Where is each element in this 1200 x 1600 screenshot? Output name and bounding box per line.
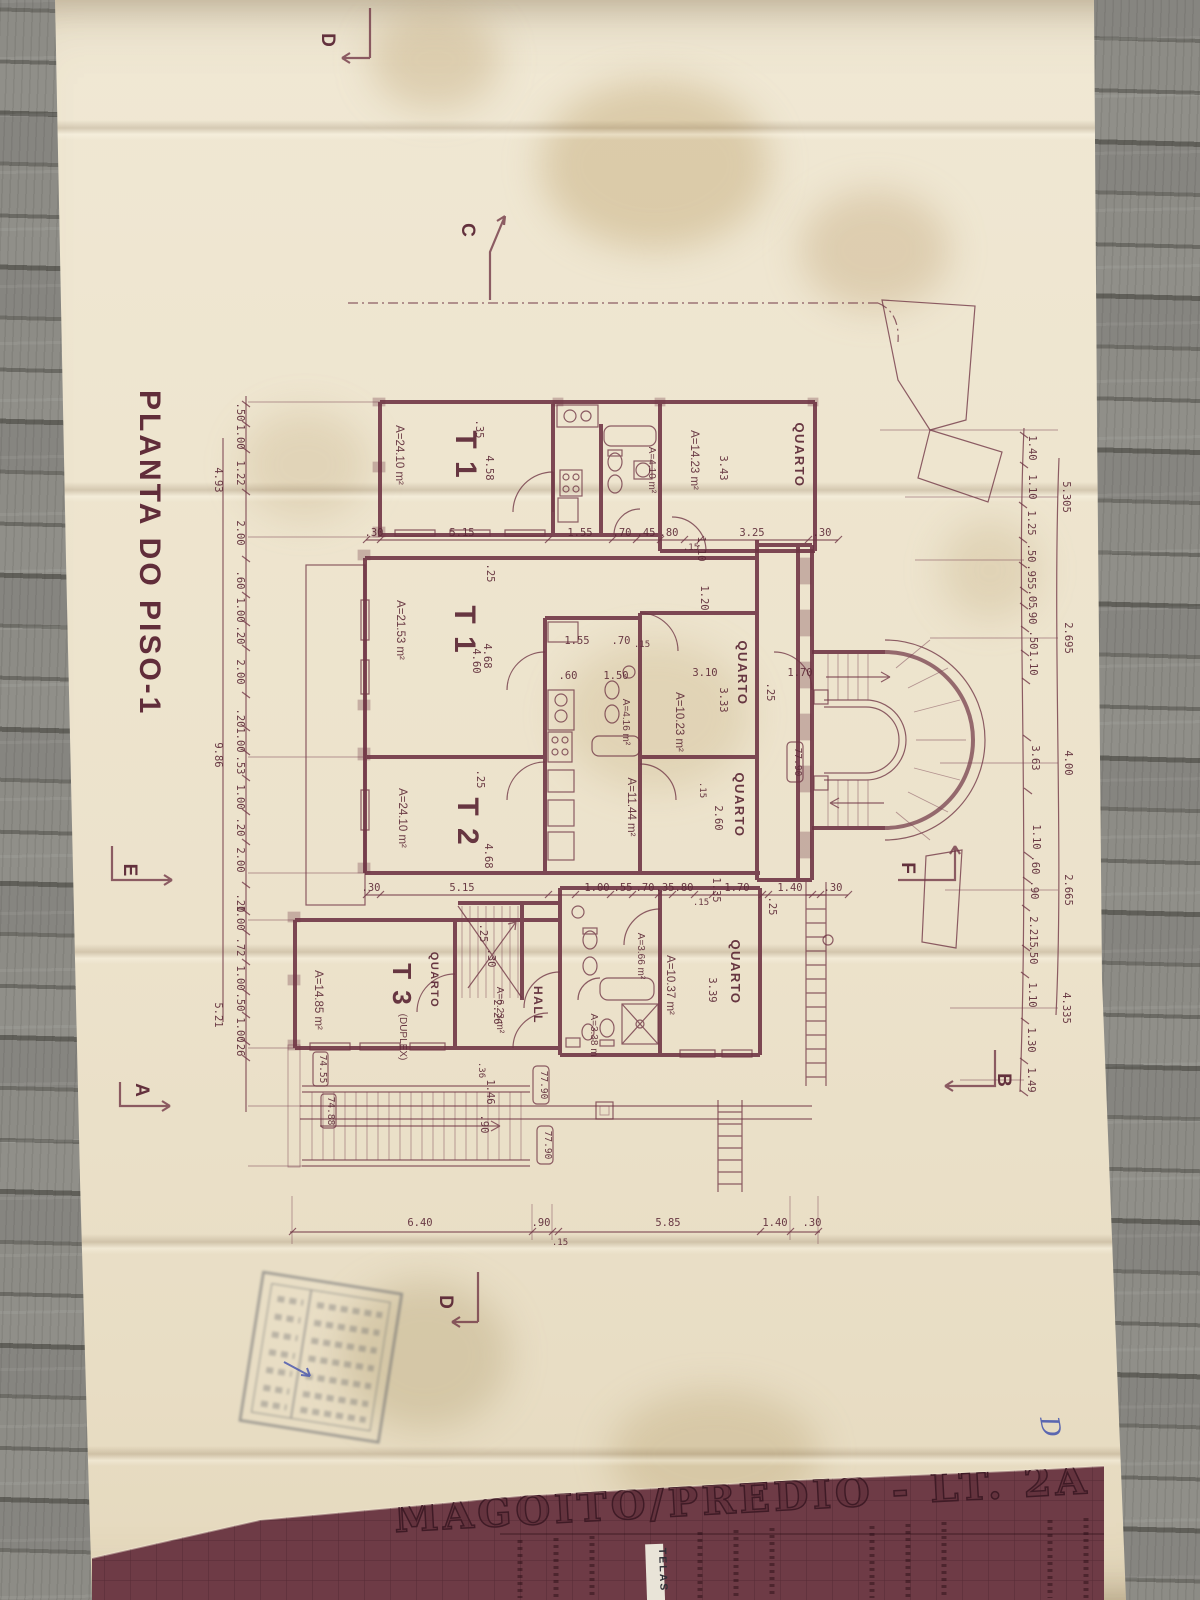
- paper-fold-crease: [40, 1446, 1140, 1466]
- paper-fold-crease: [40, 482, 1140, 502]
- paper-fold-crease: [40, 1234, 1140, 1254]
- photo-of-floorplan: D C E F A B D 77.90 77.90 77.90 74.55 74…: [0, 0, 1200, 1600]
- paper-fold-crease: [40, 120, 1140, 140]
- blueprint-paper: [0, 0, 1200, 1600]
- paper-fold-crease: [40, 944, 1140, 964]
